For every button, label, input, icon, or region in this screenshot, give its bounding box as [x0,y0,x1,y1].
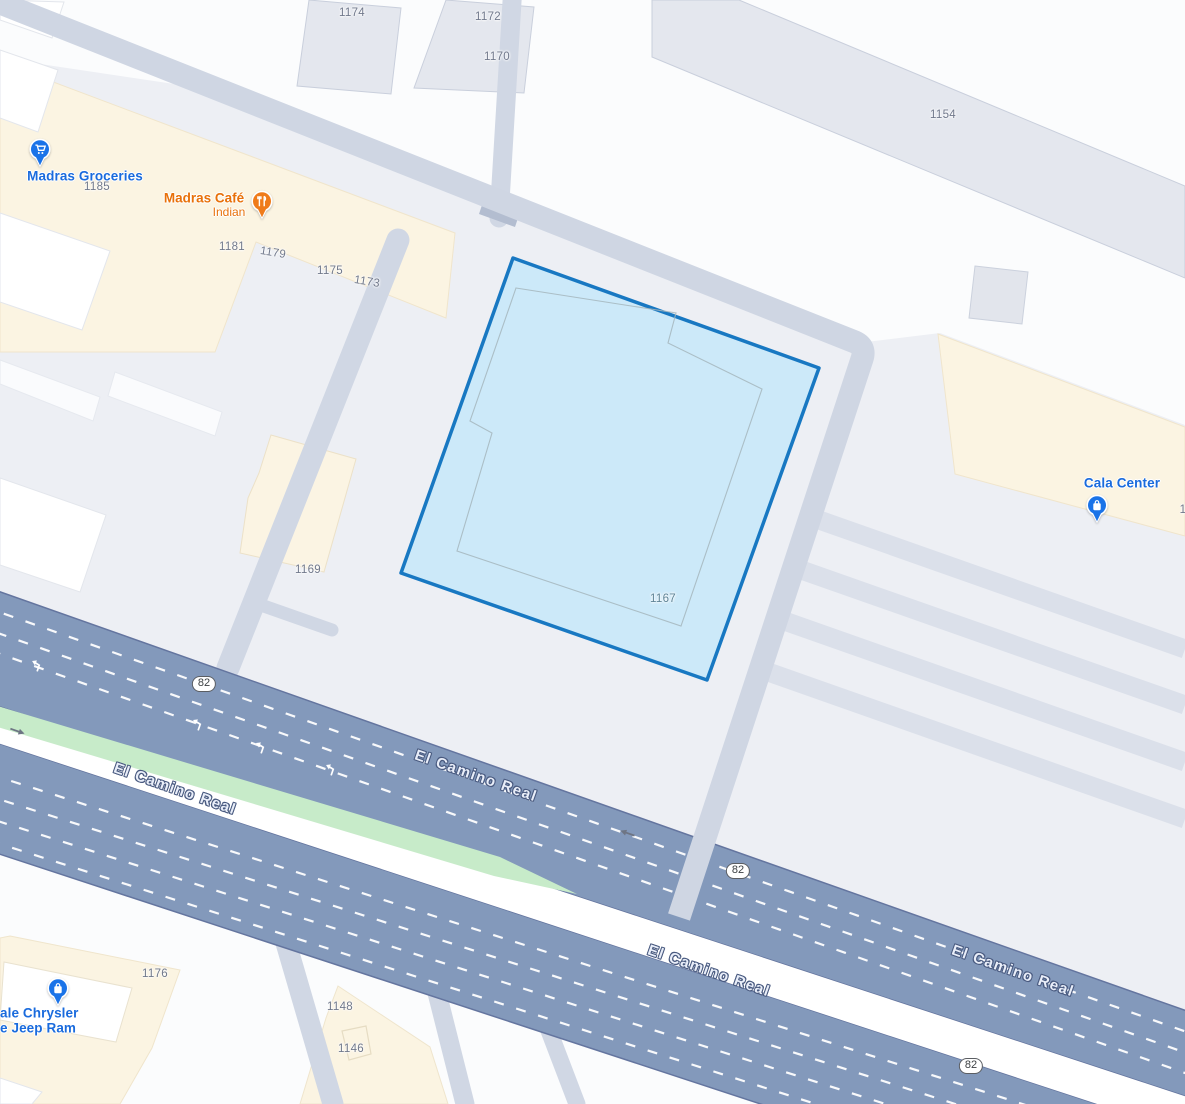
route-badge-82-3: 82 [959,1058,983,1074]
shopping-bag-icon [1085,494,1109,524]
cala-center-pin[interactable] [1085,494,1109,524]
parking-aisles [757,515,1185,819]
dealer-pin[interactable] [46,977,70,1007]
route-badge-82-2: 82 [726,863,750,879]
cafe-pin[interactable] [250,190,274,220]
shopping-bag-icon [46,977,70,1007]
parking-row-2 [108,372,222,436]
shopping-cart-icon [28,138,52,168]
map-geometry [0,0,1185,1104]
building-small-gray [969,266,1028,324]
route-badge-82-1: 82 [192,676,216,692]
building-white-4 [0,478,106,592]
restaurant-icon [250,190,274,220]
building-1174 [297,0,401,94]
map-canvas[interactable]: 1174 1172 1170 1154 1185 1181 1179 1175 … [0,0,1185,1104]
parking-row-1 [0,360,100,421]
selected-parcel-1167[interactable] [401,258,819,680]
grocery-pin[interactable] [28,138,52,168]
